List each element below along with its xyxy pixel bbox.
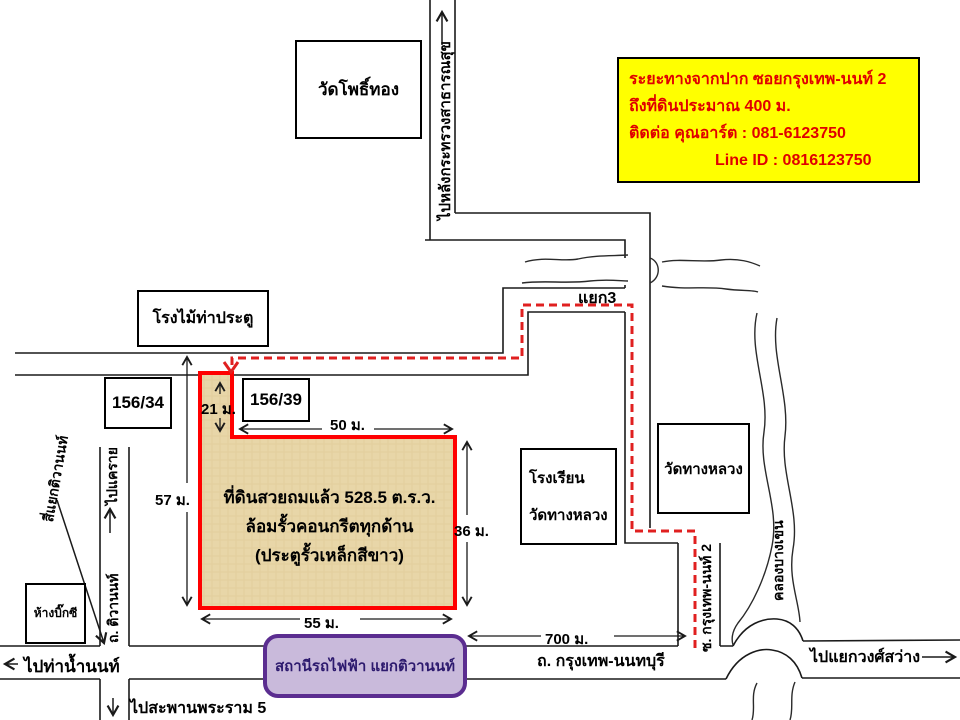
canal-east-bottom	[662, 286, 758, 292]
connector-south-edge	[425, 240, 625, 258]
canal-below-road-east	[790, 682, 795, 720]
tiwanon-road-label: ถ. ติวานนท์	[103, 574, 125, 643]
info-line-distance1: ระยะทางจากปาก ซอยกรุงเทพ-นนท์ 2	[629, 66, 918, 93]
house-156-34-label: 156/34	[112, 393, 164, 413]
dimension-neck-21m: 21 ม.	[201, 397, 236, 421]
junction3-label: แยก3	[578, 286, 616, 311]
brt-station-box: สถานีรถไฟฟ้า แยกติวานนท์	[263, 634, 467, 698]
canal-west-bottom	[522, 280, 628, 283]
to-khae-rai-label: ไปแคราย	[102, 447, 124, 505]
lumber-yard-box: โรงไม้ท่าประตู	[137, 290, 269, 347]
bridge-arc-south	[726, 650, 802, 679]
canal-east-top	[662, 259, 760, 266]
plot-line-area: ที่ดินสวยถมแล้ว 528.5 ต.ร.ว.	[202, 483, 457, 512]
to-ministry-label: ไปหลังกระทรวงสาธารณสุข	[433, 41, 457, 220]
khlong-bang-khen-label: คลองบางเขน	[768, 520, 790, 601]
dimension-left-57m: 57 ม.	[155, 488, 190, 512]
soi-krungthep-non2-label: ซ. กรุงเทพ-นนท์ 2	[696, 544, 718, 652]
to-tha-nam-non-label: ไปท่าน้ำนนท์	[24, 653, 120, 680]
wat-pho-thong-box: วัดโพธิ์ทอง	[295, 40, 422, 139]
wat-pho-thong-label: วัดโพธิ์ทอง	[318, 76, 399, 103]
info-line-lineid: Line ID : 0816123750	[629, 147, 918, 174]
tiwanon-road-lower	[100, 679, 129, 720]
dimension-right-36m: 36 ม.	[454, 519, 489, 543]
dimension-700m-to-soi: 700 ม.	[545, 627, 588, 651]
front-road-south-edge	[15, 312, 625, 375]
wat-thang-luang-label: วัดทางหลวง	[664, 457, 743, 481]
school-wat-thang-luang-box: โรงเรียน วัดทางหลวง	[520, 448, 617, 545]
info-line-phone: ติดต่อ คุณอาร์ต : 081-6123750	[629, 120, 918, 147]
canal-below-road-west	[752, 683, 757, 720]
house-156-39-box: 156/39	[242, 378, 310, 422]
plot-description: ที่ดินสวยถมแล้ว 528.5 ต.ร.ว. ล้อมรั้วคอน…	[202, 483, 457, 570]
bridge-arc-north	[733, 619, 803, 646]
plot-line-gate: (ประตูรั้วเหล็กสีขาว)	[202, 541, 457, 570]
lumber-yard-label: โรงไม้ท่าประตู	[153, 306, 254, 331]
plot-line-fence: ล้อมรั้วคอนกรีตทุกด้าน	[202, 512, 457, 541]
big-c-label: ห้างบิ๊กซี	[34, 604, 78, 623]
front-road-north-edge	[15, 288, 625, 353]
to-wong-sawang-label: ไปแยกวงศ์สว่าง	[810, 645, 920, 670]
to-rama5-bridge-label: ไปสะพานพระราม 5	[130, 696, 266, 720]
house-156-39-label: 156/39	[250, 390, 302, 410]
wat-thang-luang-box: วัดทางหลวง	[657, 423, 750, 514]
canal-west-top	[525, 255, 628, 262]
main-road-top-edge-east	[803, 640, 960, 641]
station-label: สถานีรถไฟฟ้า แยกติวานนท์	[275, 654, 455, 678]
big-c-box: ห้างบิ๊กซี	[25, 583, 86, 644]
dimension-top-50m: 50 ม.	[330, 413, 365, 437]
school-label-line2: วัดทางหลวง	[529, 503, 608, 527]
canal-small-bridge-bulge	[650, 258, 658, 283]
dimension-bottom-55m: 55 ม.	[304, 611, 339, 635]
school-label-line1: โรงเรียน	[529, 466, 585, 490]
bangkok-nonthaburi-road-label: ถ. กรุงเทพ-นนทบุรี	[537, 649, 665, 674]
house-156-34-box: 156/34	[104, 377, 172, 429]
info-line-distance2: ถึงที่ดินประมาณ 400 ม.	[629, 93, 918, 120]
hand-drawn-location-map: วัดโพธิ์ทอง โรงไม้ท่าประตู 156/34 156/39…	[0, 0, 960, 720]
contact-info-box: ระยะทางจากปาก ซอยกรุงเทพ-นนท์ 2 ถึงที่ดิ…	[617, 57, 920, 183]
